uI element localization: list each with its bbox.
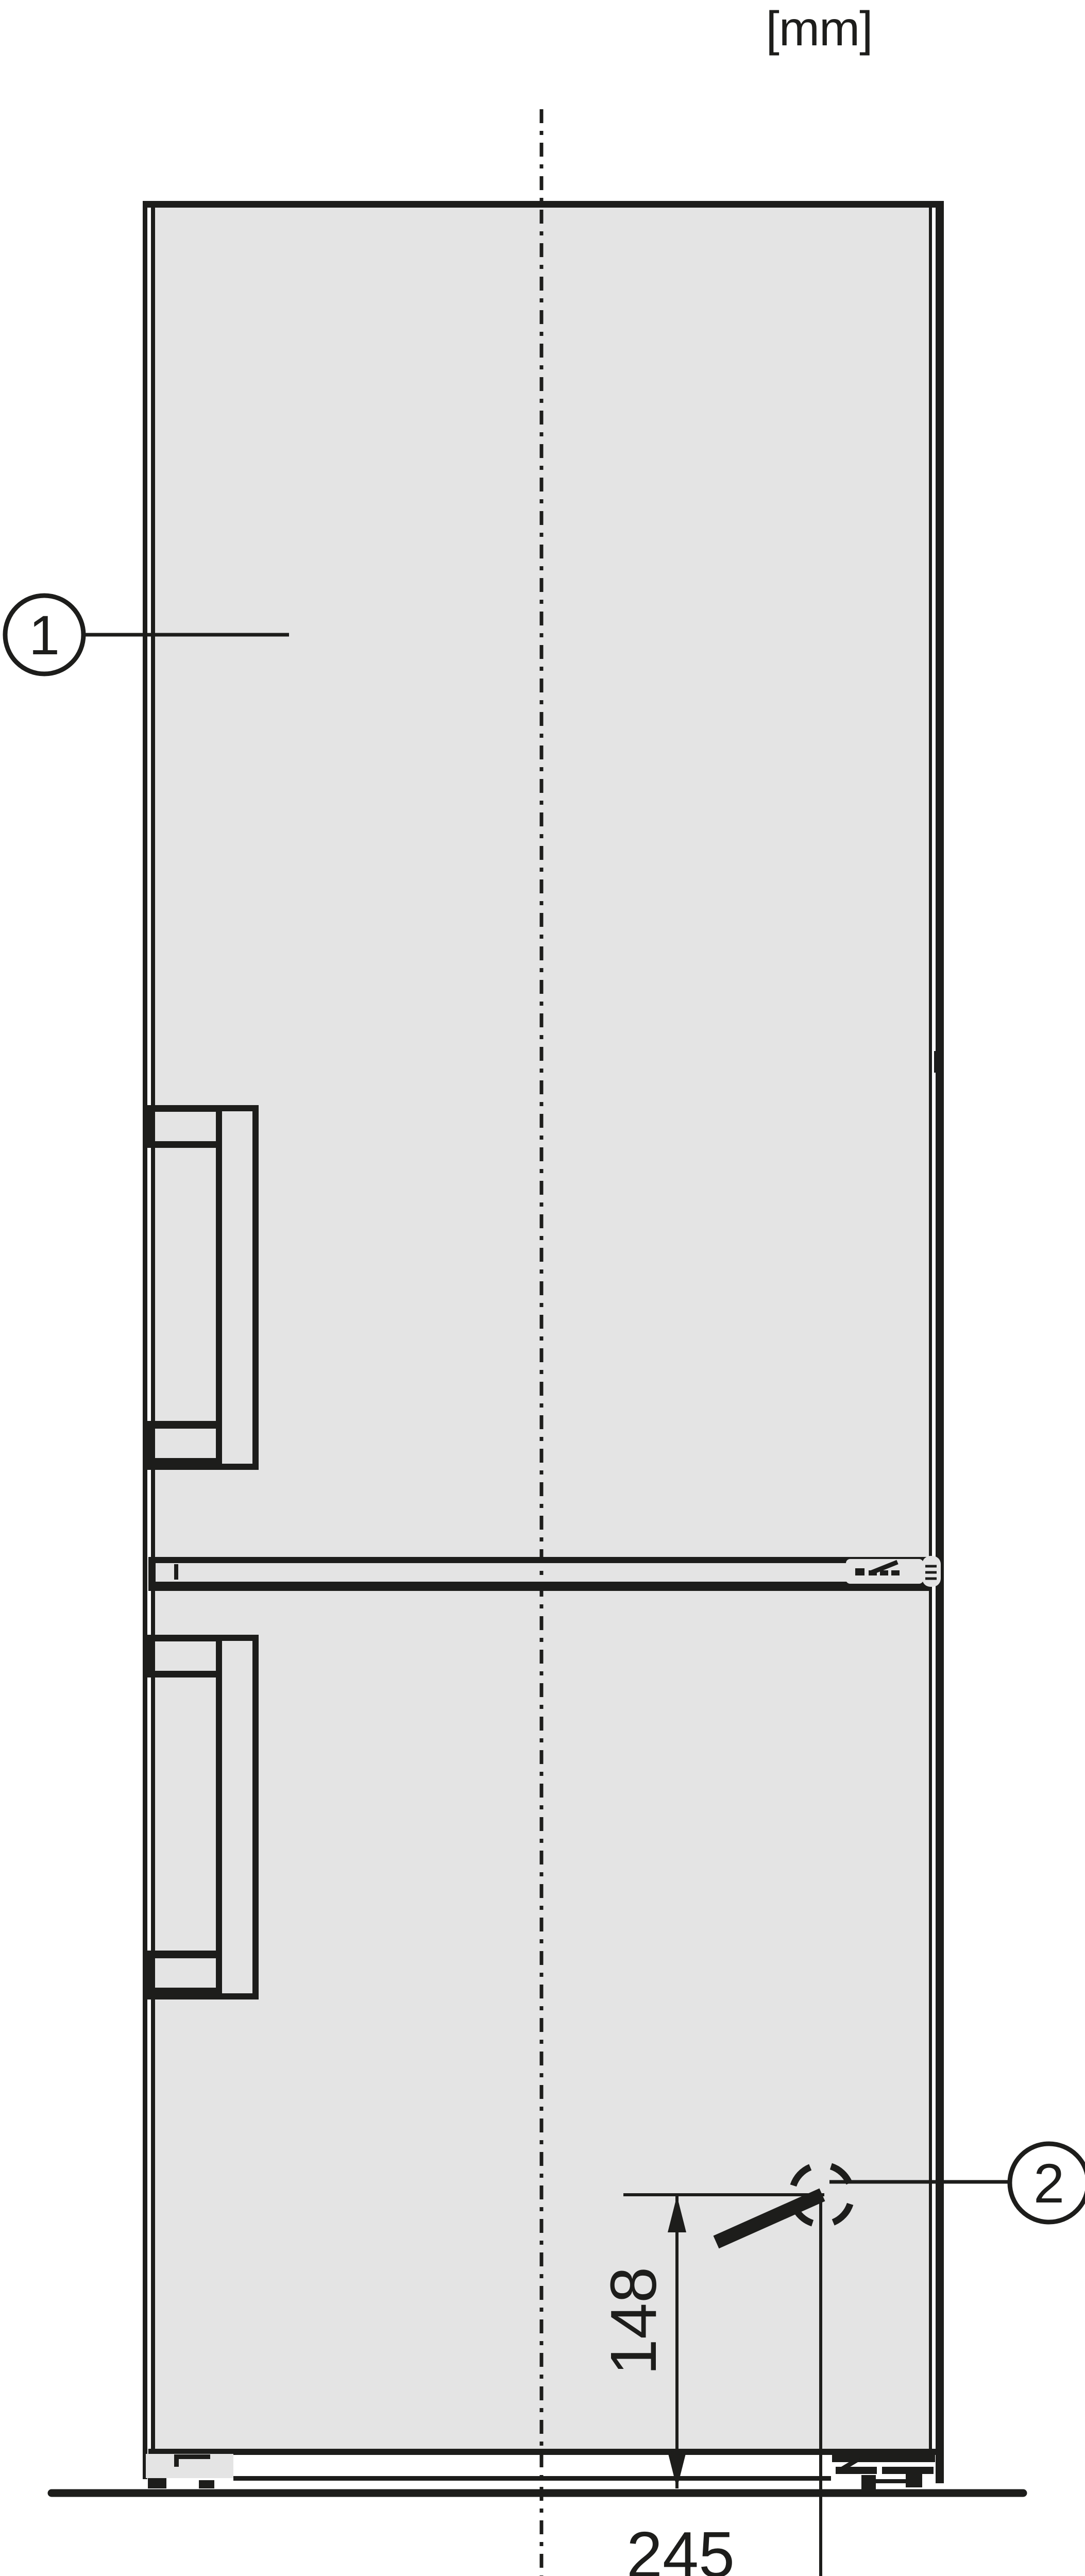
right-foot-assembly (832, 2450, 935, 2489)
kick-plate-notch-h (174, 2454, 210, 2459)
right-edge-outer-line (936, 201, 944, 2483)
dim-148-line (675, 2196, 679, 2488)
dim-148-extension-line (623, 2193, 824, 2196)
callout-2-number: 2 (1033, 2152, 1064, 2214)
assembly-lower-line (876, 2479, 906, 2483)
handle-grip-face (222, 1641, 252, 1993)
hinge-mark-2 (880, 1570, 888, 1575)
right-foot-1 (861, 2475, 876, 2489)
right-edge-tick (934, 1051, 939, 1073)
left-edge-outer-line (143, 201, 147, 2479)
handle-top-outer-bar (145, 1635, 219, 1641)
assembly-top-bar (832, 2454, 935, 2462)
assembly-bar-right (882, 2467, 934, 2474)
handle-bottom-left-cap (145, 1951, 152, 1999)
handle-bottom-inner-bar (151, 1421, 219, 1429)
assembly-dash-2 (926, 2450, 930, 2453)
dim-245-extension-line (819, 2196, 822, 2576)
door-gap-tick (174, 1564, 178, 1580)
left-foot-1 (148, 2478, 166, 2488)
center-hinge (846, 1556, 941, 1587)
dim-245-value: 245 (626, 2518, 735, 2576)
assembly-bar-left (836, 2467, 877, 2474)
handle-bottom-left-cap (145, 1421, 152, 1470)
door-gap-left-cap (148, 1557, 156, 1591)
handle-bottom-inner-bar (151, 1951, 219, 1958)
right-edge-gap (932, 208, 936, 2449)
kick-plate-notch-v (174, 2454, 179, 2467)
handle-top-outer-bar (145, 1105, 219, 1112)
hinge-mark-3 (891, 1570, 900, 1575)
dim-148-arrow-down (668, 2452, 686, 2488)
handle-bottom-outer-bar (145, 1458, 219, 1470)
underside-line (233, 2476, 831, 2481)
handle-top-left-cap (145, 1635, 152, 1677)
handle-top-left-cap (145, 1105, 152, 1148)
assembly-dash-1 (920, 2450, 924, 2453)
left-edge-gap (147, 208, 151, 2449)
handle-top-inner-bar (151, 1671, 219, 1677)
right-edge-inner-line (929, 208, 932, 2449)
handle-top-inner-bar (151, 1141, 219, 1148)
left-foot-2 (199, 2480, 214, 2488)
right-foot-2 (906, 2473, 922, 2487)
door-gap-seal-detail (179, 1564, 240, 1580)
callout-1-number: 1 (29, 604, 60, 666)
handle-grip-face (222, 1111, 252, 1464)
diagram-canvas: 148 245 1 2 [mm] (0, 0, 1085, 2576)
handle-bottom-outer-bar (145, 1988, 219, 1999)
fridge-dimension-diagram: 148 245 1 2 [mm] (0, 0, 1085, 2576)
hinge-pin (855, 1568, 864, 1575)
unit-label: [mm] (766, 2, 872, 56)
dim-148-value: 148 (597, 2267, 670, 2375)
left-edge-inner-line (151, 208, 155, 2449)
